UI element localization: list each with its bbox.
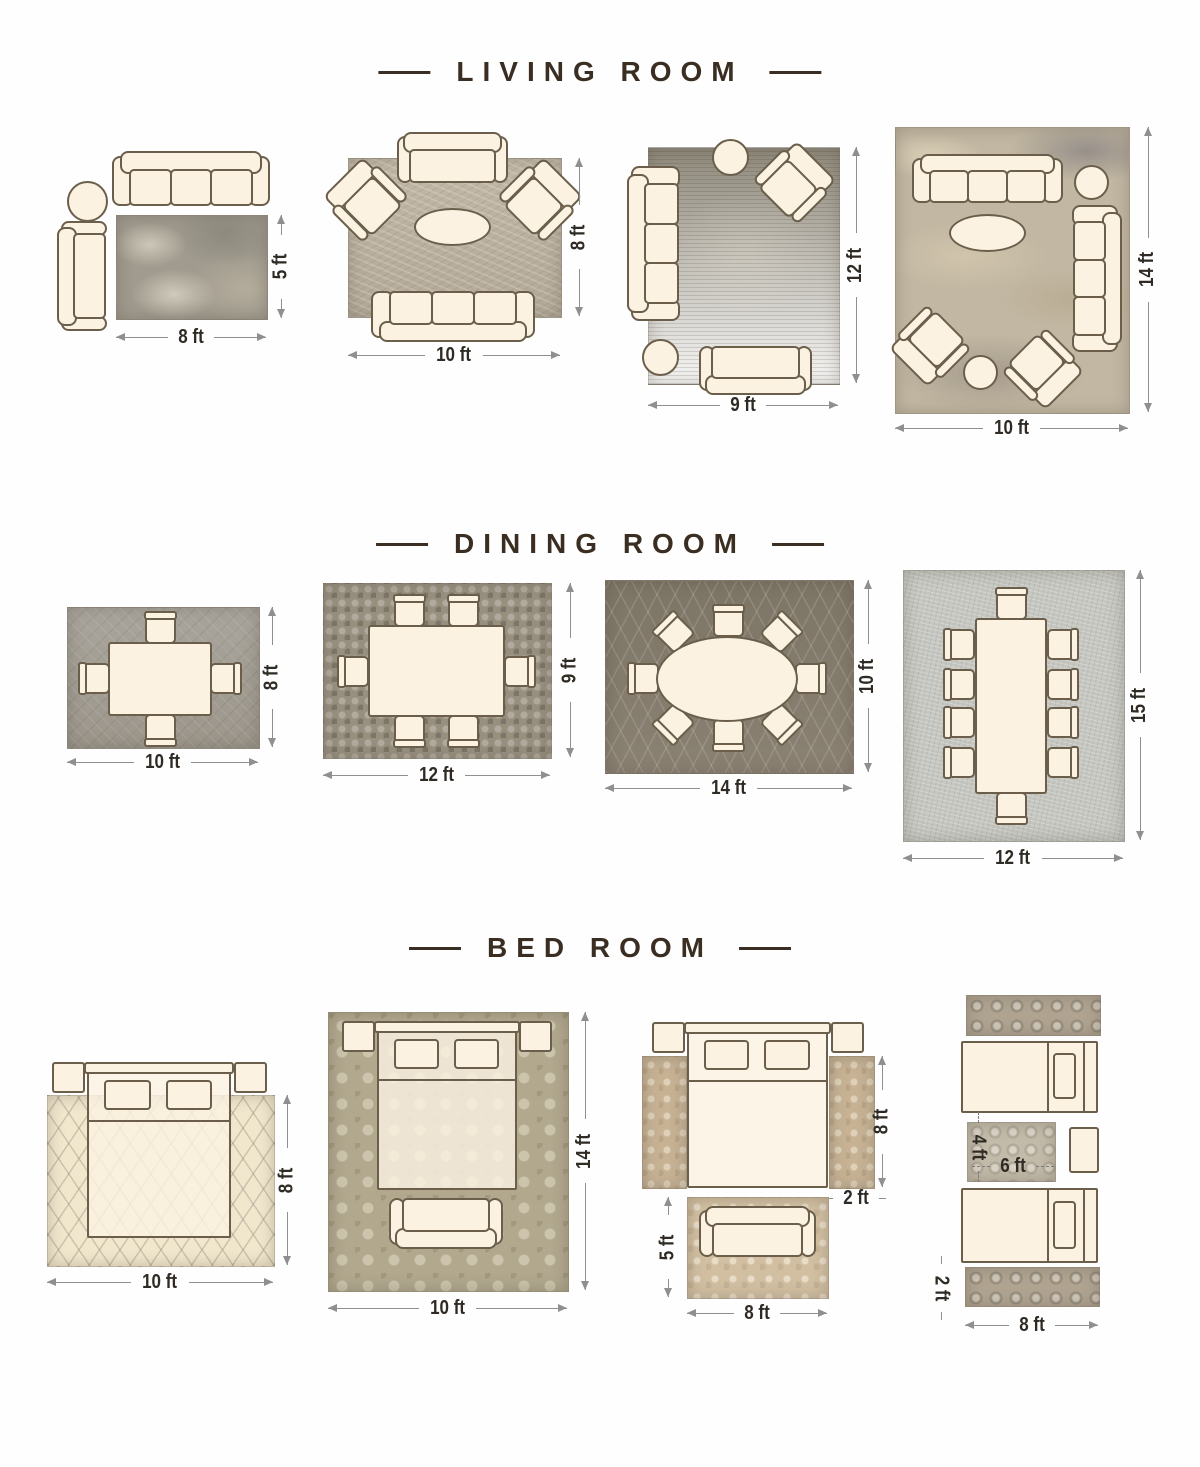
dimension-height: 14 ft (572, 1012, 598, 1290)
dimension-height: 9 ft (557, 583, 583, 757)
dining-chair (82, 663, 110, 694)
dimension-width: 10 ft (47, 1268, 273, 1296)
title-dash-left (378, 71, 430, 74)
dimension-height: 10 ft (855, 580, 881, 772)
section-title-living-room: LIVING ROOM (378, 56, 821, 88)
title-dash-right (739, 947, 791, 950)
dimension-height: 8 ft (259, 607, 285, 747)
nightstand (652, 1022, 685, 1053)
dining-chair (145, 615, 176, 644)
dimension-runner-height: 8 ft (869, 1056, 895, 1187)
dining-chair (1047, 747, 1075, 778)
title-dash-right (770, 71, 822, 74)
twin-bed (961, 1188, 1098, 1263)
title-dash-left (376, 543, 428, 546)
round-side-table (67, 181, 108, 222)
foot-bench (389, 1196, 503, 1249)
round-side-table (712, 139, 749, 176)
section-title-bed-room: BED ROOM (409, 932, 791, 964)
dining-table (108, 642, 212, 716)
dimension-height: 12 ft (843, 147, 869, 383)
title-dash-left (409, 947, 461, 950)
dimension-width: 9 ft (648, 391, 838, 419)
dining-chair (1047, 707, 1075, 738)
dimension-runner-height: 2 ft (928, 1256, 954, 1316)
runner-rug-8x2 (642, 1056, 687, 1189)
dimension-accent-rug-width: 6 ft (972, 1152, 1054, 1180)
dining-chair (795, 663, 823, 694)
bed (687, 1022, 828, 1188)
three-seat-sofa (627, 166, 681, 321)
dining-table (975, 618, 1047, 794)
three-seat-sofa (371, 289, 535, 342)
runner-rug-8x2 (966, 995, 1101, 1036)
dimension-width: 14 ft (605, 774, 852, 802)
dining-chair (947, 669, 975, 700)
dimension-width: 10 ft (348, 341, 560, 369)
dimension-width: 12 ft (903, 844, 1123, 872)
bed (87, 1062, 231, 1238)
dining-chair (631, 663, 659, 694)
dimension-width: 8 ft (116, 323, 266, 351)
round-side-table (1074, 165, 1109, 200)
section-title-dining-room: DINING ROOM (376, 528, 824, 560)
dimension-width: 10 ft (67, 748, 258, 776)
dimension-runner-width: 2 ft (826, 1184, 882, 1212)
nightstand (519, 1021, 552, 1052)
nightstand (1069, 1127, 1099, 1173)
dimension-width: 12 ft (323, 761, 550, 789)
nightstand (342, 1021, 375, 1052)
dining-chair (1047, 629, 1075, 660)
dining-chair (713, 608, 744, 637)
loveseat (699, 344, 812, 395)
dimension-height: 8 ft (566, 158, 592, 316)
dining-chair (713, 719, 744, 748)
bed (377, 1021, 517, 1190)
dimension-width: 10 ft (895, 414, 1128, 442)
section-title-text: LIVING ROOM (456, 56, 743, 88)
living-rug-8x5 (116, 215, 268, 320)
dining-chair (448, 598, 479, 627)
round-side-table (963, 355, 998, 390)
dining-chair (394, 715, 425, 744)
dimension-foot-rug-width: 8 ft (687, 1299, 827, 1327)
nightstand (52, 1062, 85, 1093)
dimension-width: 10 ft (328, 1294, 567, 1322)
dining-chair (448, 715, 479, 744)
dimension-height: 5 ft (268, 215, 294, 318)
dining-table (368, 625, 505, 717)
oval-dining-table (656, 636, 798, 722)
dining-chair (996, 591, 1027, 620)
section-title-text: BED ROOM (487, 932, 713, 964)
dining-chair (394, 598, 425, 627)
chaise-loveseat (57, 221, 108, 331)
dimension-foot-rug-height: 5 ft (655, 1197, 681, 1297)
section-title-text: DINING ROOM (454, 528, 746, 560)
oval-coffee-table (414, 208, 491, 246)
dining-chair (947, 629, 975, 660)
three-seat-sofa (912, 154, 1063, 205)
dining-chair (145, 714, 176, 743)
nightstand (234, 1062, 267, 1093)
three-seat-sofa (1071, 205, 1122, 352)
twin-bed (961, 1041, 1098, 1113)
three-seat-sofa (112, 151, 270, 208)
oval-coffee-table (949, 214, 1026, 252)
dining-chair (996, 792, 1027, 821)
dining-chair (947, 747, 975, 778)
rug-size-guide: LIVING ROOM 5 ft 8 ft 8 ft 10 ft (0, 0, 1200, 1467)
dining-chair (947, 707, 975, 738)
dimension-height: 15 ft (1127, 570, 1153, 840)
dimension-runner-width: 8 ft (965, 1311, 1098, 1339)
loveseat (699, 1206, 816, 1259)
dining-chair (1047, 669, 1075, 700)
round-side-table (642, 339, 679, 376)
dining-chair (341, 656, 369, 687)
title-dash-right (772, 543, 824, 546)
dining-chair (210, 663, 238, 694)
nightstand (831, 1022, 864, 1053)
loveseat (397, 132, 508, 185)
dimension-height: 8 ft (274, 1095, 300, 1265)
dining-chair (504, 656, 532, 687)
dimension-height: 14 ft (1135, 127, 1161, 412)
runner-rug-8x2 (965, 1267, 1100, 1307)
